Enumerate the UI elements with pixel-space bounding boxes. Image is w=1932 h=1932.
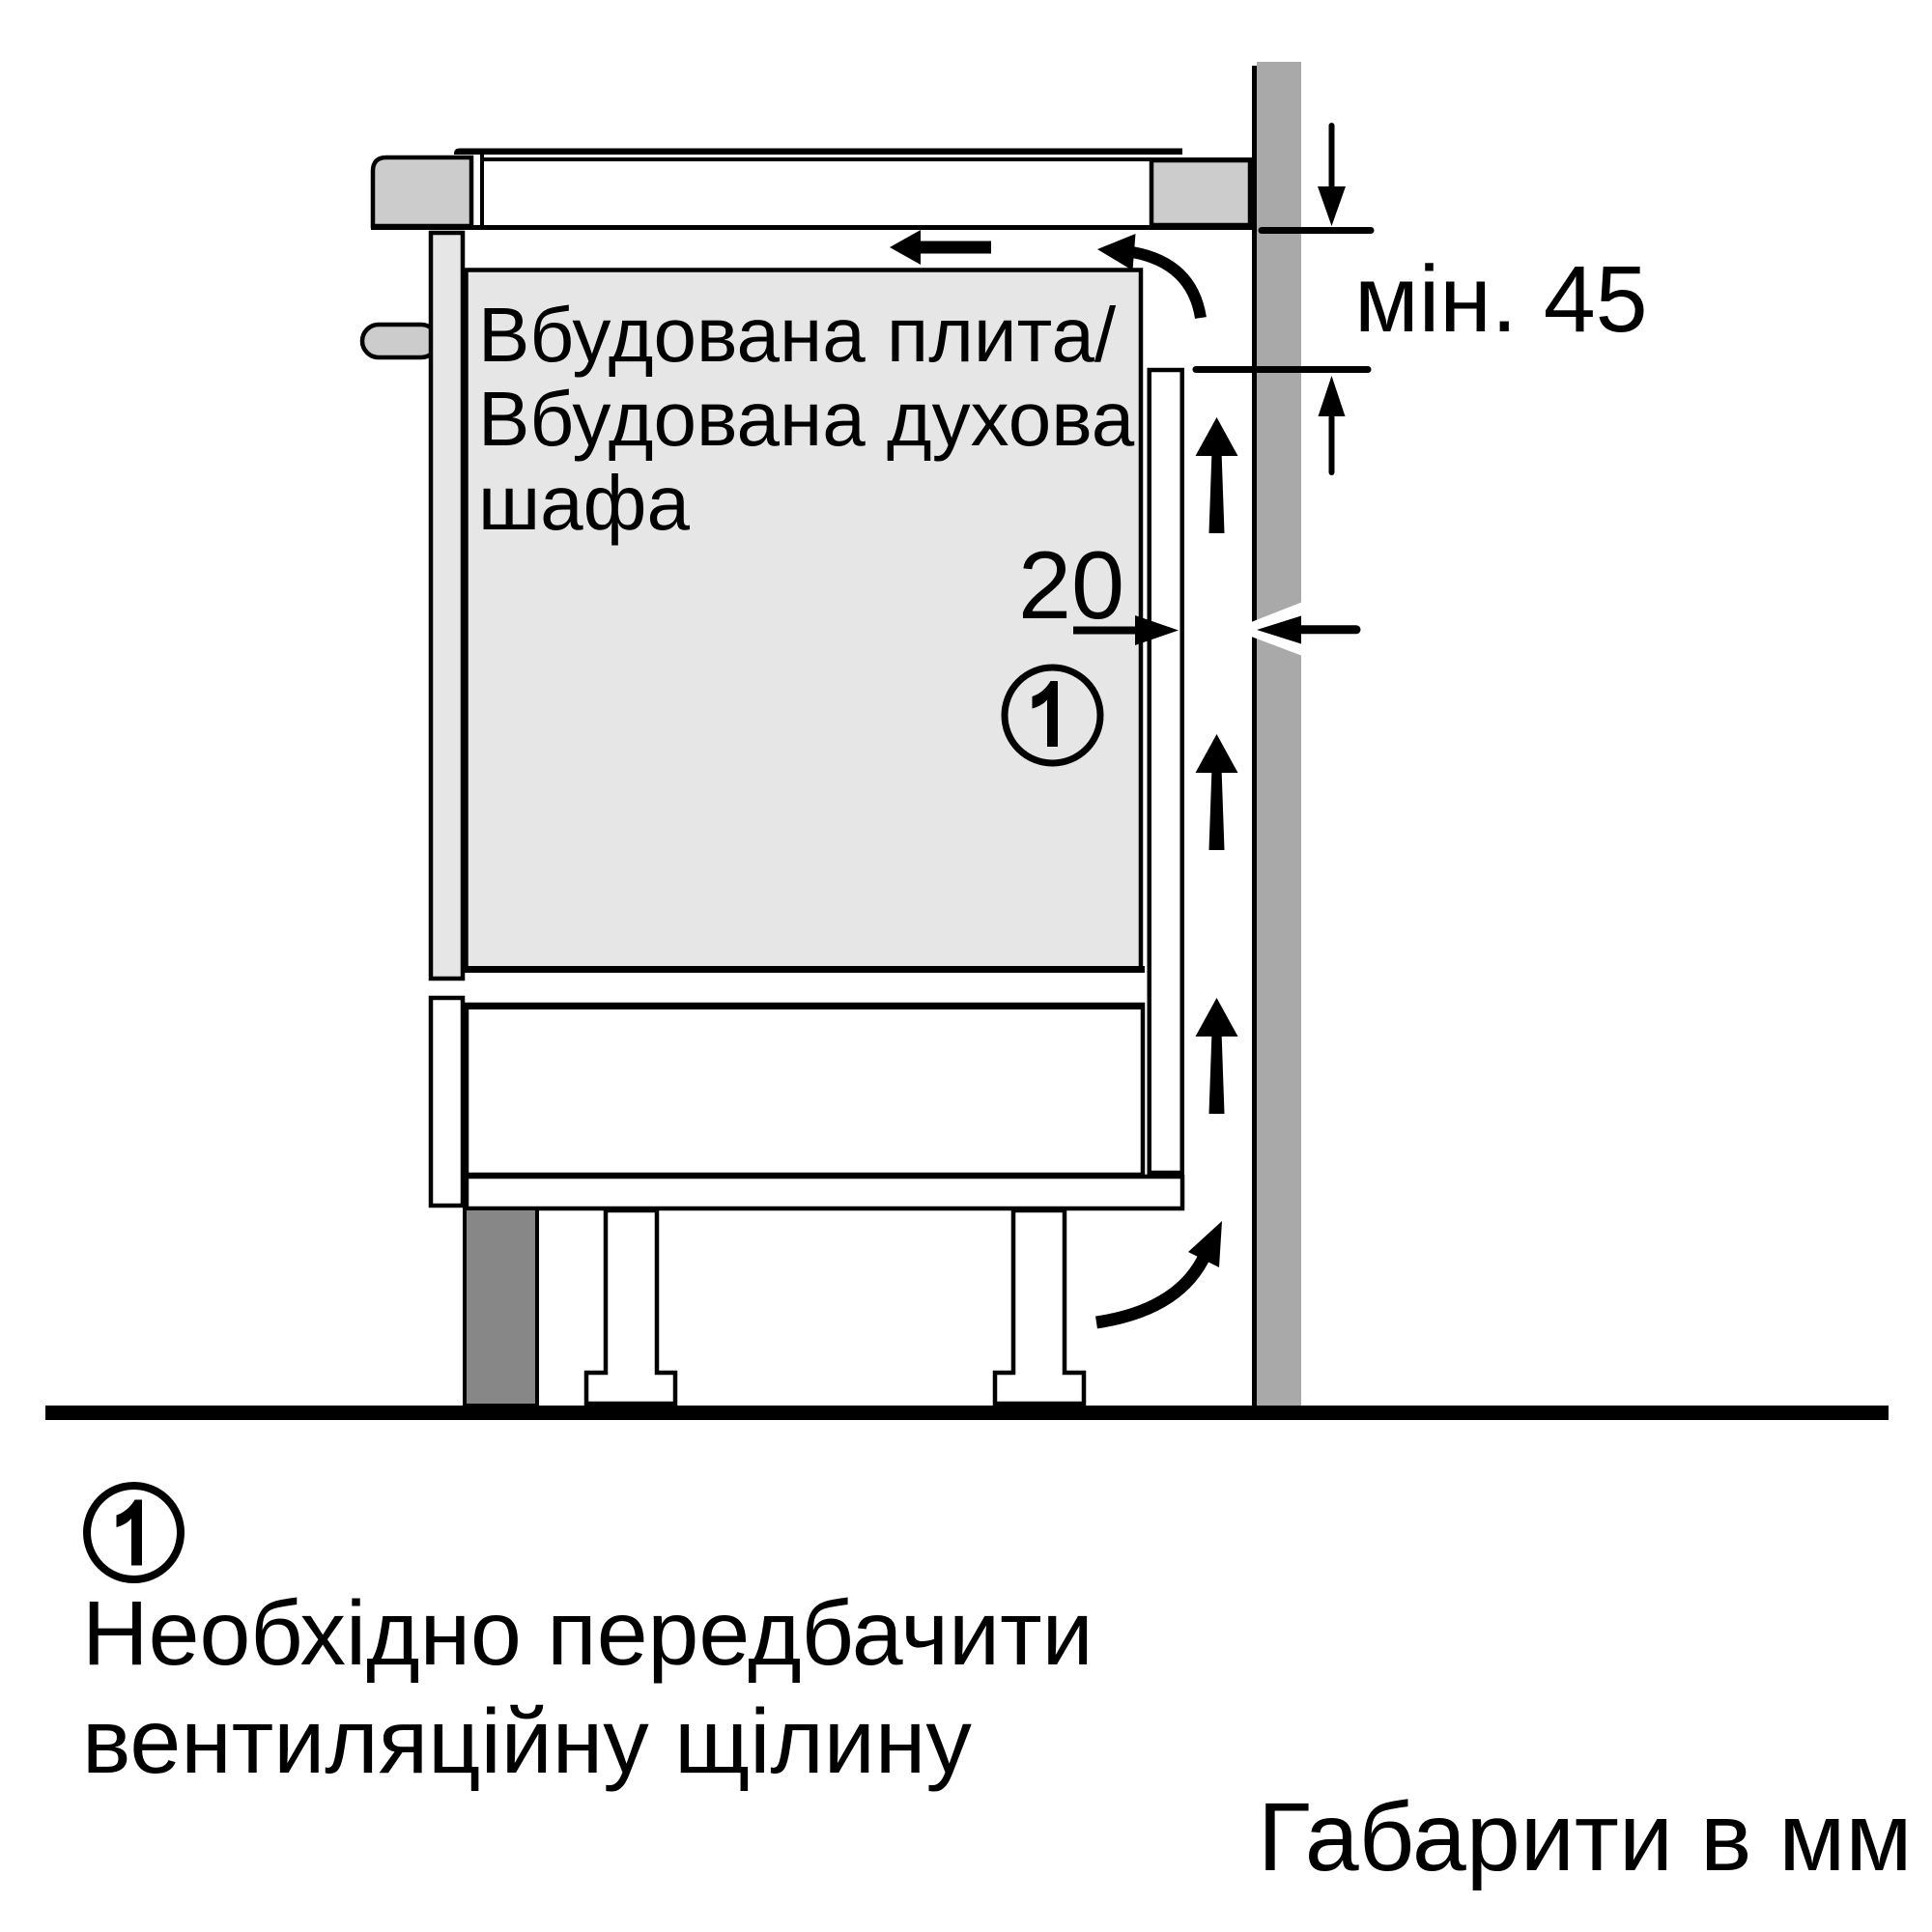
svg-text:шафа: шафа	[478, 460, 690, 546]
svg-text:мін. 45: мін. 45	[1354, 246, 1648, 352]
svg-text:Вбудована плита/: Вбудована плита/	[478, 292, 1117, 378]
svg-text:вентиляційну щілину: вентиляційну щілину	[82, 1690, 972, 1793]
svg-text:20: 20	[1018, 531, 1124, 639]
svg-text:Габарити в мм: Габарити в мм	[1258, 1783, 1912, 1891]
svg-text:Необхідно передбачити: Необхідно передбачити	[82, 1582, 1094, 1685]
svg-text:Вбудована духова: Вбудована духова	[478, 376, 1135, 462]
